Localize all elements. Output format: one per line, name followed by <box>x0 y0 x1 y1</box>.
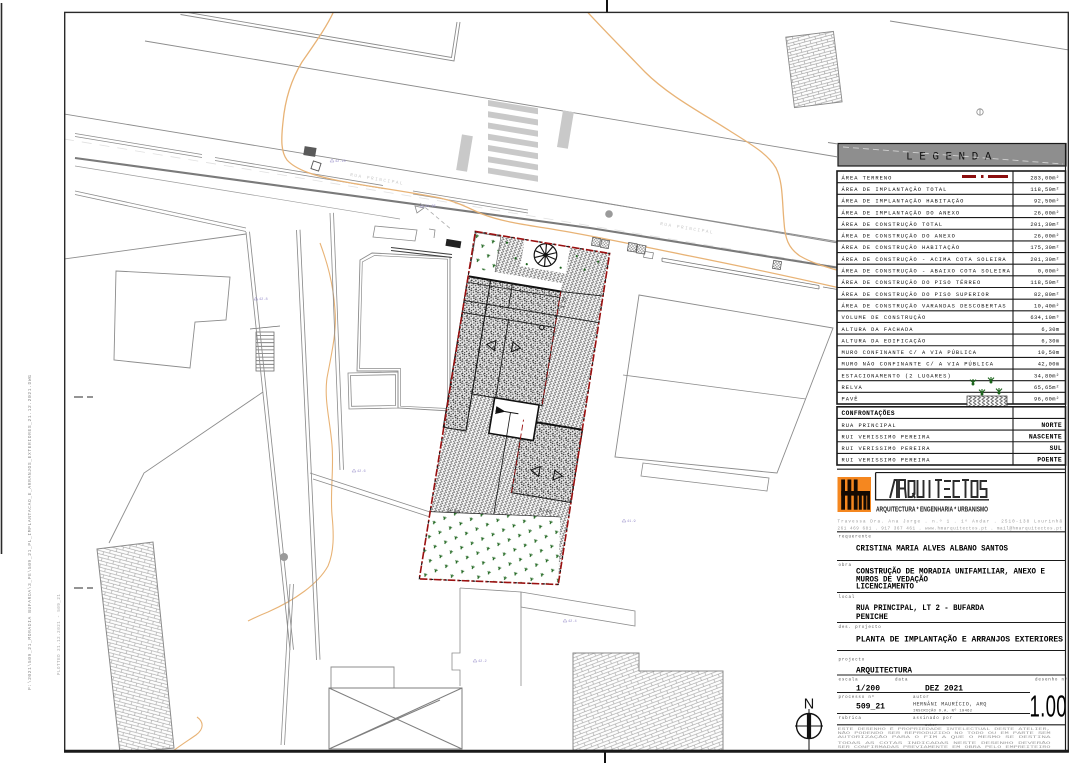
svg-text:261 469 681 . 917 367 461 . ww: 261 469 681 . 917 367 461 . www.hmarquit… <box>838 526 1063 531</box>
svg-text:42.6: 42.6 <box>357 470 366 474</box>
svg-text:NORTE: NORTE <box>1041 422 1062 429</box>
svg-text:PENICHE: PENICHE <box>856 613 888 622</box>
svg-text:42.2: 42.2 <box>478 660 487 664</box>
svg-text:PLANTA DE IMPLANTAÇÃO E ARRANJ: PLANTA DE IMPLANTAÇÃO E ARRANJOS EXTERIO… <box>856 635 1063 645</box>
svg-text:POENTE: POENTE <box>1037 457 1062 464</box>
svg-text:509_21: 509_21 <box>856 703 885 712</box>
svg-text:42.10: 42.10 <box>335 160 346 164</box>
svg-text:42,00m: 42,00m <box>1038 362 1060 368</box>
svg-text:10,40m²: 10,40m² <box>1034 303 1059 309</box>
svg-text:INSCRIÇÃO O.A. Nº 19462: INSCRIÇÃO O.A. Nº 19462 <box>913 709 973 714</box>
svg-text:RUA PRINCIPAL: RUA PRINCIPAL <box>842 423 897 429</box>
svg-text:RUI VERISSIMO PEREIRA: RUI VERISSIMO PEREIRA <box>842 458 931 464</box>
svg-text:41.9: 41.9 <box>627 520 636 524</box>
svg-text:ÁREA DE CONSTRUÇÃO - ACIMA COT: ÁREA DE CONSTRUÇÃO - ACIMA COTA SOLEIRA <box>842 256 1007 263</box>
svg-text:ALTURA DA EDIFICAÇÃO: ALTURA DA EDIFICAÇÃO <box>842 337 927 344</box>
svg-text:ÁREA DE CONSTRUÇÃO HABITAÇÃO: ÁREA DE CONSTRUÇÃO HABITAÇÃO <box>842 244 961 251</box>
svg-text:LICENCIAMENTO: LICENCIAMENTO <box>856 583 914 592</box>
svg-text:ÁREA DE IMPLANTAÇÃO HABITAÇÃO: ÁREA DE IMPLANTAÇÃO HABITAÇÃO <box>842 198 965 205</box>
svg-text:AUTORIZAÇÃO PARA O FIM A QUE O: AUTORIZAÇÃO PARA O FIM A QUE O MESMO SE … <box>838 735 1052 740</box>
svg-text:283,00m²: 283,00m² <box>1030 175 1059 181</box>
svg-text:projecto: projecto <box>839 658 866 663</box>
svg-text:CONFRONTAÇÕES: CONFRONTAÇÕES <box>842 410 895 417</box>
svg-text:42.4: 42.4 <box>568 620 577 624</box>
svg-text:6,30m: 6,30m <box>1041 327 1059 333</box>
svg-text:rubrica: rubrica <box>839 716 862 721</box>
svg-text:6,30m: 6,30m <box>1041 338 1059 344</box>
svg-text:92,50m²: 92,50m² <box>1034 199 1059 205</box>
svg-text:HERNÂNI MAURÍCIO, ARQ: HERNÂNI MAURÍCIO, ARQ <box>913 701 987 708</box>
svg-text:VOLUME DE CONSTRUÇÃO: VOLUME DE CONSTRUÇÃO <box>842 314 927 321</box>
svg-text:PAVÊ: PAVÊ <box>842 396 859 403</box>
svg-text:634,10m³: 634,10m³ <box>1030 315 1059 321</box>
svg-text:SER CONFIRMADAS PREVIAMENTE EM: SER CONFIRMADAS PREVIAMENTE EM OBRA PELO… <box>838 746 1052 750</box>
svg-text:obra: obra <box>839 563 852 568</box>
svg-text:CRISTINA MARIA ALVES ALBANO SA: CRISTINA MARIA ALVES ALBANO SANTOS <box>856 545 1008 554</box>
svg-text:ÁREA DE IMPLANTAÇÃO DO ANEXO: ÁREA DE IMPLANTAÇÃO DO ANEXO <box>842 209 961 216</box>
svg-text:26,00m²: 26,00m² <box>1034 210 1059 216</box>
svg-text:ARQUITECTURA: ARQUITECTURA <box>856 667 912 676</box>
svg-text:0,00m²: 0,00m² <box>1038 269 1060 275</box>
svg-text:des. projecto: des. projecto <box>839 625 882 630</box>
svg-text:34,80m²: 34,80m² <box>1034 373 1059 379</box>
svg-text:P:\2021\509_21_MORADIA BUFARDA: P:\2021\509_21_MORADIA BUFARDA\3_PE\509_… <box>27 374 33 690</box>
svg-text:Travessa Dra. Ana Jorge . n.º: Travessa Dra. Ana Jorge . n.º 1 . 1º And… <box>838 519 1063 525</box>
svg-text:26,00m²: 26,00m² <box>1034 234 1059 240</box>
svg-text:NASCENTE: NASCENTE <box>1029 433 1062 440</box>
svg-text:118,50m²: 118,50m² <box>1030 187 1059 193</box>
svg-text:data: data <box>895 678 908 683</box>
svg-text:RELVA: RELVA <box>842 385 863 391</box>
svg-text:ÁREA DE CONSTRUÇÃO - ABAIXO CO: ÁREA DE CONSTRUÇÃO - ABAIXO COTA SOLEIRA <box>842 268 1011 275</box>
svg-text:ÁREA DE CONSTRUÇÃO TOTAL: ÁREA DE CONSTRUÇÃO TOTAL <box>842 221 944 228</box>
svg-text:RUA PRINCIPAL, LT 2 - BUFARDA: RUA PRINCIPAL, LT 2 - BUFARDA <box>856 604 984 613</box>
svg-text:MURO NÃO CONFINANTE C/ A VIA P: MURO NÃO CONFINANTE C/ A VIA PÚBLICA <box>842 361 994 368</box>
svg-text:118,50m²: 118,50m² <box>1030 280 1059 286</box>
svg-text:175,30m²: 175,30m² <box>1030 245 1059 251</box>
svg-text:1.00: 1.00 <box>1030 690 1067 724</box>
svg-text:escala: escala <box>839 678 859 683</box>
svg-text:RUI VERISSIMO PEREIRA: RUI VERISSIMO PEREIRA <box>842 434 931 440</box>
svg-text:ÁREA DE CONSTRUÇÃO DO PISO TÉR: ÁREA DE CONSTRUÇÃO DO PISO TÉRREO <box>842 279 982 286</box>
svg-text:42.8: 42.8 <box>259 298 268 302</box>
svg-text:requerente: requerente <box>839 536 872 540</box>
svg-text:ESTACIONAMENTO (2 LUGARES): ESTACIONAMENTO (2 LUGARES) <box>842 373 952 379</box>
svg-text:ARQUITECTURA * ENGENHARIA * UR: ARQUITECTURA * ENGENHARIA * URBANISMO <box>876 505 988 514</box>
svg-text:autor: autor <box>913 696 930 700</box>
svg-text:local: local <box>839 595 856 600</box>
svg-text:10,50m: 10,50m <box>1038 350 1060 356</box>
svg-text:PLOTTED 21.12.2021 - 509_21: PLOTTED 21.12.2021 - 509_21 <box>58 594 62 675</box>
svg-text:ÁREA DE CONSTRUÇÃO VARANDAS DE: ÁREA DE CONSTRUÇÃO VARANDAS DESCOBERTAS <box>842 302 1007 309</box>
svg-text:82,80m²: 82,80m² <box>1034 292 1059 298</box>
svg-text:ÁREA DE CONSTRUÇÃO DO PISO SUP: ÁREA DE CONSTRUÇÃO DO PISO SUPERIOR <box>842 291 990 298</box>
svg-text:ÁREA DE CONSTRUÇÃO DO ANEXO: ÁREA DE CONSTRUÇÃO DO ANEXO <box>842 233 956 240</box>
svg-text:RUI VERISSIMO PEREIRA: RUI VERISSIMO PEREIRA <box>842 446 931 452</box>
svg-text:96,60m²: 96,60m² <box>1034 397 1059 403</box>
svg-text:MURO CONFINANTE C/ A VIA PÚBLI: MURO CONFINANTE C/ A VIA PÚBLICA <box>842 349 978 356</box>
svg-text:ALTURA DA FACHADA: ALTURA DA FACHADA <box>842 327 914 333</box>
svg-text:ÁREA DE IMPLANTAÇÃO TOTAL: ÁREA DE IMPLANTAÇÃO TOTAL <box>842 186 948 193</box>
svg-text:SUL: SUL <box>1050 445 1062 452</box>
svg-text:65,65m²: 65,65m² <box>1034 385 1059 391</box>
svg-text:201,30m²: 201,30m² <box>1030 222 1059 228</box>
svg-text:ÁREA TERRENO: ÁREA TERRENO <box>842 174 893 181</box>
svg-text:assinado por: assinado por <box>913 716 953 721</box>
svg-text:201,30m²: 201,30m² <box>1030 257 1059 263</box>
